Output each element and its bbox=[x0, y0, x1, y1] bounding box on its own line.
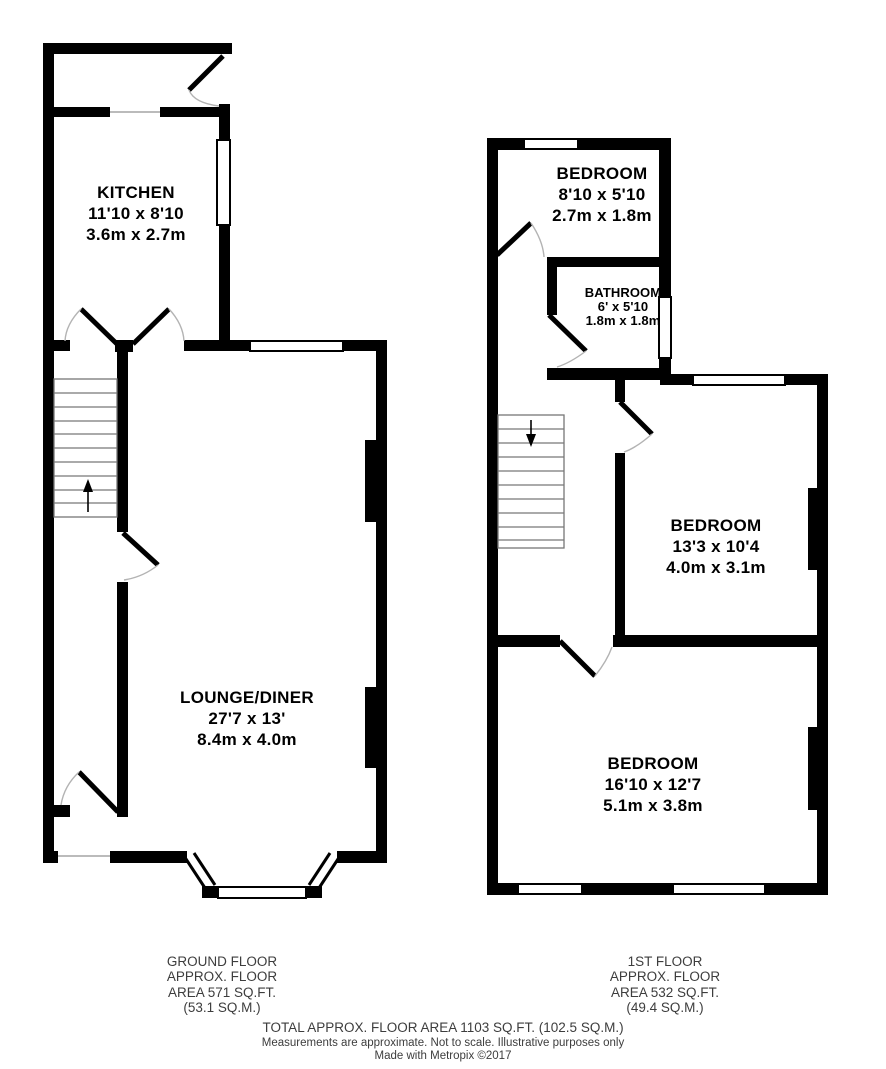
chimney-breast bbox=[365, 687, 387, 768]
ground-floor-area-caption: GROUND FLOOR APPROX. FLOOR AREA 571 SQ.F… bbox=[167, 954, 277, 1016]
floorplan-page: KITCHEN 11'10 x 8'10 3.6m x 2.7m LOUNGE/… bbox=[0, 0, 886, 1069]
room-name: KITCHEN bbox=[86, 182, 186, 203]
room-size-imperial: 16'10 x 12'7 bbox=[603, 774, 703, 795]
door-leaf bbox=[549, 315, 586, 351]
ground-floor-stairs bbox=[54, 379, 117, 517]
caption-line: AREA 571 SQ.FT. bbox=[167, 985, 277, 1000]
ground-floor-windows bbox=[217, 140, 343, 898]
door-leaf bbox=[133, 309, 169, 344]
room-name: BEDROOM bbox=[603, 753, 703, 774]
room-size-imperial: 6' x 5'10 bbox=[585, 300, 661, 314]
room-size-imperial: 11'10 x 8'10 bbox=[86, 203, 186, 224]
window bbox=[518, 884, 582, 894]
window bbox=[693, 375, 785, 385]
window bbox=[250, 341, 343, 351]
room-name: BEDROOM bbox=[666, 515, 766, 536]
disclaimer-text: Measurements are approximate. Not to sca… bbox=[262, 1037, 624, 1049]
caption-line: (49.4 SQ.M.) bbox=[610, 1000, 720, 1015]
caption-line: APPROX. FLOOR bbox=[167, 969, 277, 984]
chimney-breast bbox=[808, 727, 828, 810]
bay-window bbox=[218, 887, 306, 898]
room-label-bedroom-1: BEDROOM 8'10 x 5'10 2.7m x 1.8m bbox=[552, 163, 652, 226]
door-leaf bbox=[560, 641, 595, 676]
first-floor-area-caption: 1ST FLOOR APPROX. FLOOR AREA 532 SQ.FT. … bbox=[610, 954, 720, 1016]
door-leaf bbox=[497, 223, 531, 255]
door-leaf bbox=[79, 772, 118, 812]
ground-floor-plan bbox=[43, 43, 387, 898]
chimney-breast bbox=[365, 440, 387, 522]
stairs-up-arrow-icon bbox=[83, 479, 93, 512]
room-size-imperial: 27'7 x 13' bbox=[180, 708, 314, 729]
caption-line: APPROX. FLOOR bbox=[610, 969, 720, 984]
chimney-breast bbox=[808, 488, 828, 570]
room-size-metric: 2.7m x 1.8m bbox=[552, 205, 652, 226]
caption-line: AREA 532 SQ.FT. bbox=[610, 985, 720, 1000]
room-label-lounge-diner: LOUNGE/DINER 27'7 x 13' 8.4m x 4.0m bbox=[180, 687, 314, 750]
room-size-metric: 5.1m x 3.8m bbox=[603, 795, 703, 816]
caption-line: GROUND FLOOR bbox=[167, 954, 277, 969]
window bbox=[217, 140, 230, 225]
metropix-credit: Made with Metropix ©2017 bbox=[375, 1050, 512, 1062]
caption-line: (53.1 SQ.M.) bbox=[167, 1000, 277, 1015]
bay-window-sides bbox=[184, 853, 340, 888]
total-floor-area: TOTAL APPROX. FLOOR AREA 1103 SQ.FT. (10… bbox=[262, 1020, 623, 1035]
door-leaf bbox=[123, 533, 158, 565]
room-name: BEDROOM bbox=[552, 163, 652, 184]
room-label-kitchen: KITCHEN 11'10 x 8'10 3.6m x 2.7m bbox=[86, 182, 186, 245]
room-name: LOUNGE/DINER bbox=[180, 687, 314, 708]
room-size-metric: 1.8m x 1.8m bbox=[585, 314, 661, 328]
caption-line: 1ST FLOOR bbox=[610, 954, 720, 969]
room-size-metric: 4.0m x 3.1m bbox=[666, 557, 766, 578]
door-leaf bbox=[620, 402, 652, 434]
ground-floor-walls bbox=[43, 43, 387, 898]
door-leaf bbox=[189, 56, 223, 90]
window bbox=[524, 139, 578, 149]
room-label-bedroom-2: BEDROOM 13'3 x 10'4 4.0m x 3.1m bbox=[666, 515, 766, 578]
window bbox=[673, 884, 765, 894]
room-size-metric: 3.6m x 2.7m bbox=[86, 224, 186, 245]
room-name: BATHROOM bbox=[585, 286, 661, 300]
room-size-imperial: 13'3 x 10'4 bbox=[666, 536, 766, 557]
first-floor-stairs bbox=[498, 415, 564, 548]
room-label-bedroom-3: BEDROOM 16'10 x 12'7 5.1m x 3.8m bbox=[603, 753, 703, 816]
room-size-imperial: 8'10 x 5'10 bbox=[552, 184, 652, 205]
door-leaf bbox=[81, 309, 117, 344]
room-size-metric: 8.4m x 4.0m bbox=[180, 729, 314, 750]
room-label-bathroom: BATHROOM 6' x 5'10 1.8m x 1.8m bbox=[585, 286, 661, 328]
